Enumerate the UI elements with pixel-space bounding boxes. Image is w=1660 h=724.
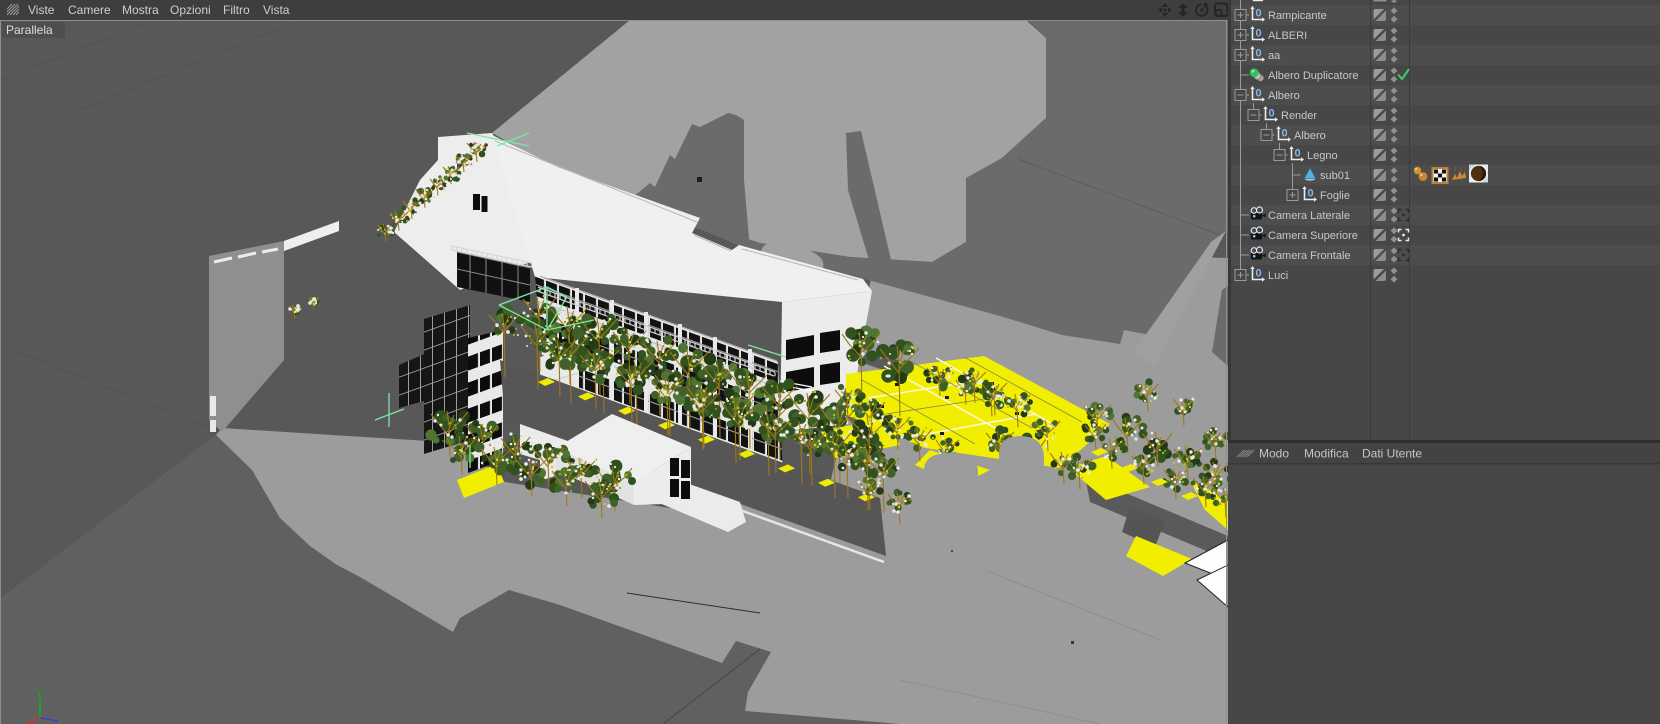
svg-text:Legno: Legno [1307, 150, 1338, 162]
svg-text:Foglie: Foglie [1320, 190, 1350, 202]
svg-text:Render: Render [1281, 110, 1317, 122]
svg-text:Albero: Albero [1268, 90, 1300, 102]
svg-text:Parallela: Parallela [6, 23, 53, 37]
svg-text:Camera Laterale: Camera Laterale [1268, 210, 1350, 222]
svg-text:aa: aa [1268, 50, 1281, 62]
svg-text:0: 0 [1256, 88, 1262, 100]
svg-text:0: 0 [1308, 188, 1314, 200]
svg-text:Modifica: Modifica [1304, 447, 1349, 461]
svg-text:Camera Frontale: Camera Frontale [1268, 250, 1351, 262]
svg-text:0: 0 [1256, 8, 1262, 20]
svg-text:0: 0 [1295, 148, 1301, 160]
svg-text:0: 0 [1282, 128, 1288, 140]
svg-text:Dati Utente: Dati Utente [1362, 447, 1422, 461]
svg-text:Albero Duplicatore: Albero Duplicatore [1268, 70, 1359, 82]
svg-text:sub01: sub01 [1320, 170, 1350, 182]
svg-text:ALBERI: ALBERI [1268, 30, 1307, 42]
svg-text:Luci: Luci [1268, 270, 1288, 282]
svg-text:0: 0 [1269, 108, 1275, 120]
svg-text:Modo: Modo [1259, 447, 1289, 461]
svg-text:0: 0 [1256, 268, 1262, 280]
svg-text:Albero: Albero [1294, 130, 1326, 142]
svg-text:0: 0 [1256, 28, 1262, 40]
svg-text:0: 0 [1256, 48, 1262, 60]
svg-text:Y: Y [36, 688, 42, 698]
svg-text:Camera Superiore: Camera Superiore [1268, 230, 1358, 242]
svg-text:Rampicante: Rampicante [1268, 10, 1327, 22]
